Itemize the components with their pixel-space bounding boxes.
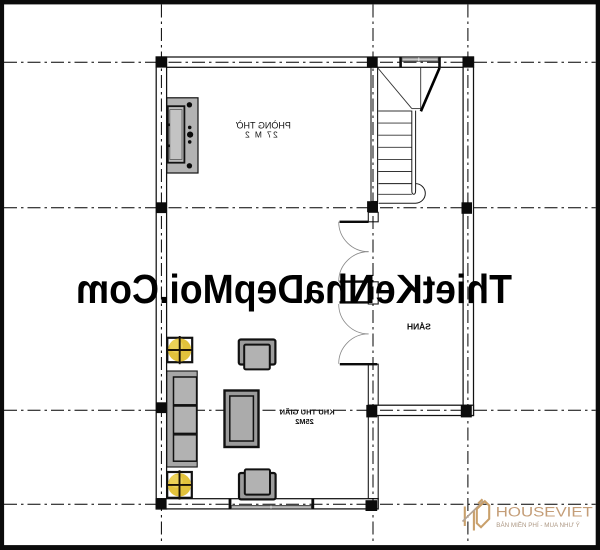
svg-text:BẢN MIỀN PHÍ - MUA NHƯ Ý: BẢN MIỀN PHÍ - MUA NHƯ Ý [496, 522, 580, 529]
svg-text:27 M 2: 27 M 2 [244, 129, 278, 139]
svg-text:SẢNH: SẢNH [407, 321, 431, 332]
svg-text:25M2: 25M2 [295, 417, 314, 426]
svg-text:HOUSEVIET: HOUSEVIET [496, 504, 593, 520]
svg-text:ThietKeNhaDepMoi.Com: ThietKeNhaDepMoi.Com [76, 266, 512, 312]
svg-text:KHU THU GIÃN: KHU THU GIÃN [280, 408, 335, 417]
